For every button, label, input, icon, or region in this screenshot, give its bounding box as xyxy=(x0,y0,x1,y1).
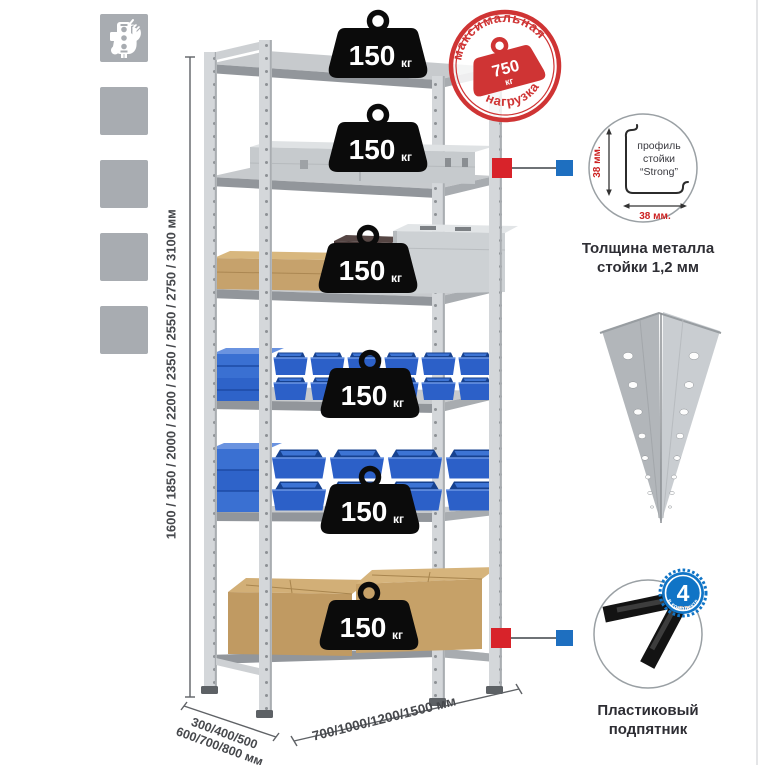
page-edge-line xyxy=(756,0,758,765)
gloves-icon xyxy=(100,87,148,135)
callout-blue-marker xyxy=(556,160,573,176)
svg-text:4: 4 xyxy=(677,580,690,606)
svg-text:“Strong”: “Strong” xyxy=(640,166,678,178)
height-dimension-line xyxy=(185,57,195,697)
plastic-foot xyxy=(256,710,273,718)
corner-post-image xyxy=(600,312,721,523)
svg-text:кг: кг xyxy=(391,271,402,285)
svg-text:150: 150 xyxy=(341,496,388,527)
svg-text:профиль: профиль xyxy=(637,140,681,152)
callout-blue-marker xyxy=(556,630,573,646)
weight-badge-2: 150 кг xyxy=(329,107,428,173)
weight-badge-1: 150 кг xyxy=(329,13,428,79)
svg-text:150: 150 xyxy=(339,255,386,286)
svg-text:кг: кг xyxy=(401,150,412,164)
max-load-stamp: 750 кг максимальная нагрузка xyxy=(438,0,571,132)
callout-red-marker xyxy=(491,628,511,648)
svg-text:150: 150 xyxy=(340,612,387,643)
svg-text:150: 150 xyxy=(341,380,388,411)
svg-text:кг: кг xyxy=(401,56,412,70)
svg-text:38 мм.: 38 мм. xyxy=(639,211,671,222)
thickness-caption: Толщина металла стойки 1,2 мм xyxy=(578,240,718,278)
svg-text:150: 150 xyxy=(349,134,396,165)
svg-text:кг: кг xyxy=(392,628,403,642)
drill-icon xyxy=(100,160,148,208)
height-dimension-label: 1600 / 1850 / 2000 / 2200 / 2350 / 2550 … xyxy=(165,54,180,694)
level-icon xyxy=(100,306,148,354)
person-icon xyxy=(100,233,148,281)
svg-text:150: 150 xyxy=(349,40,396,71)
plastic-foot xyxy=(201,686,218,694)
feature-icons-panel xyxy=(100,14,148,379)
foot-detail: 4 штуки в комплекте xyxy=(594,570,706,688)
foot-callout xyxy=(491,628,573,648)
callout-red-marker xyxy=(492,158,512,178)
svg-text:кг: кг xyxy=(393,512,404,526)
profile-detail: 38 мм. 38 мм. профиль стойки “Strong” xyxy=(589,114,697,222)
svg-text:38 мм.: 38 мм. xyxy=(592,146,603,178)
svg-text:стойки: стойки xyxy=(643,153,675,165)
svg-text:кг: кг xyxy=(393,396,404,410)
profile-callout xyxy=(492,158,573,178)
product-infographic: 150 кг 150 кг 150 кг 150 кг 150 кг 150 к… xyxy=(0,0,765,765)
foot-caption: Пластиковый подпятник xyxy=(583,702,713,740)
